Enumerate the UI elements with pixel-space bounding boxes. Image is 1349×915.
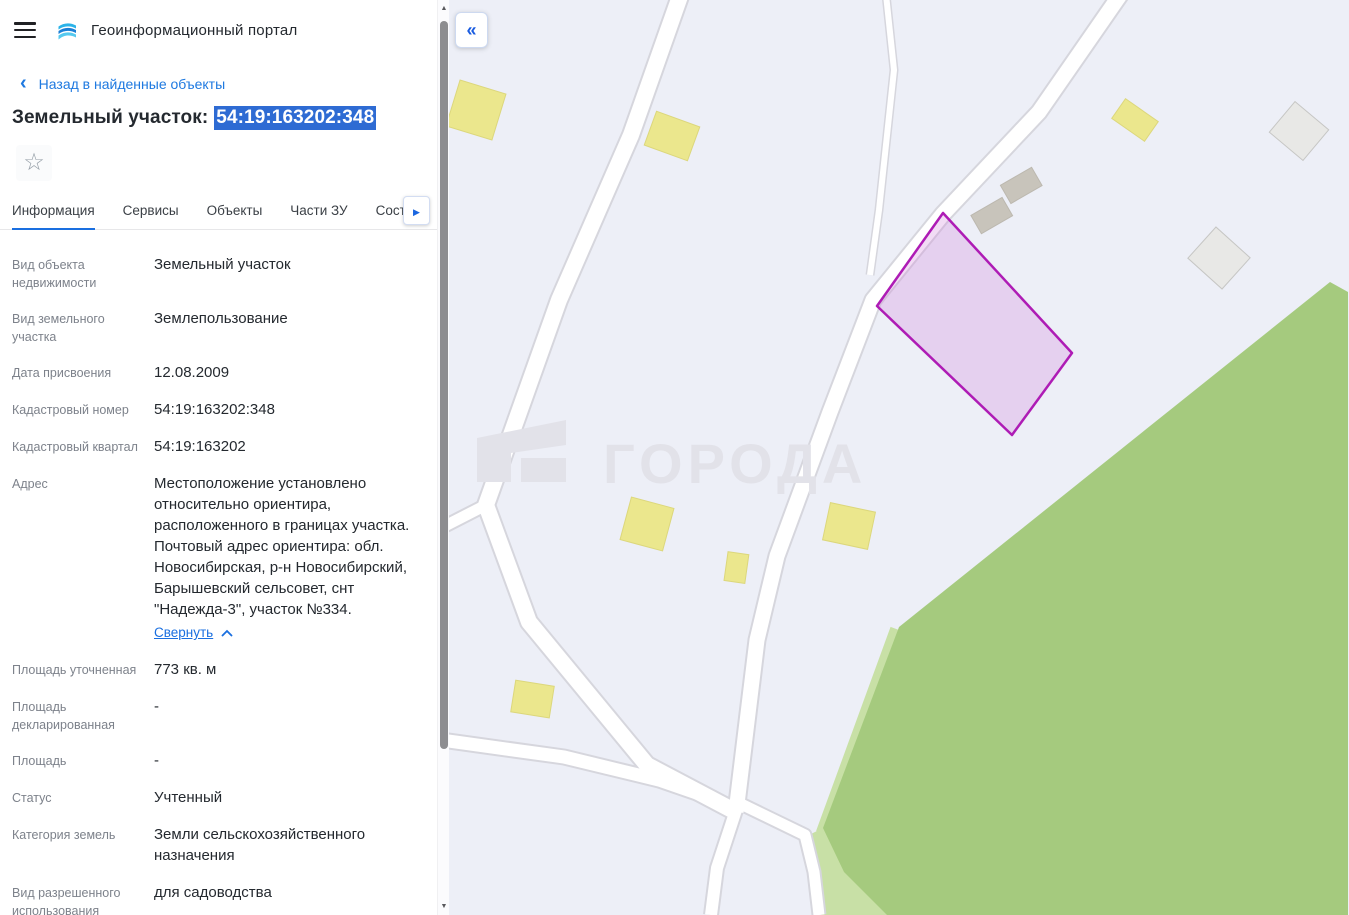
field-permitted-use: Вид разрешенного использования для садов… bbox=[12, 882, 425, 915]
field-label: Категория земель bbox=[12, 824, 154, 866]
field-address: Адрес Местоположение установлено относит… bbox=[12, 473, 425, 643]
building-yellow bbox=[511, 680, 555, 718]
tab-zu-parts[interactable]: Части ЗУ bbox=[290, 194, 347, 229]
field-assign-date: Дата присвоения 12.08.2009 bbox=[12, 362, 425, 383]
geo-portal-app: Геоинформационный портал ‹ Назад в найде… bbox=[0, 0, 1349, 915]
field-area: Площадь - bbox=[12, 750, 425, 771]
field-value: Земли сельскохозяйственного назначения bbox=[154, 824, 425, 866]
field-label: Вид разрешенного использования bbox=[12, 882, 154, 915]
field-label: Вид земельного участка bbox=[12, 308, 154, 346]
star-icon: ☆ bbox=[23, 151, 45, 175]
field-area-declared: Площадь декларированная - bbox=[12, 696, 425, 734]
field-label: Кадастровый номер bbox=[12, 399, 154, 420]
field-value: Учтенный bbox=[154, 787, 425, 808]
field-value: 54:19:163202:348 bbox=[154, 399, 425, 420]
field-label: Статус bbox=[12, 787, 154, 808]
field-value: 54:19:163202 bbox=[154, 436, 425, 457]
fields-list: Вид объекта недвижимости Земельный участ… bbox=[12, 254, 425, 915]
field-value: Земельный участок bbox=[154, 254, 425, 292]
field-label: Дата присвоения bbox=[12, 362, 154, 383]
back-link[interactable]: ‹ Назад в найденные объекты bbox=[20, 76, 437, 92]
field-status: Статус Учтенный bbox=[12, 787, 425, 808]
favorite-button[interactable]: ☆ bbox=[16, 145, 52, 181]
field-area-refined: Площадь уточненная 773 кв. м bbox=[12, 659, 425, 680]
app-title: Геоинформационный портал bbox=[91, 22, 297, 39]
field-label: Кадастровый квартал bbox=[12, 436, 154, 457]
chevron-left-icon: ‹ bbox=[20, 76, 27, 90]
field-value: 773 кв. м bbox=[154, 659, 425, 680]
watermark-text: ГОРОДА bbox=[603, 432, 867, 495]
collapse-panel-button[interactable]: « bbox=[455, 12, 488, 48]
tab-information[interactable]: Информация bbox=[12, 194, 95, 230]
field-cadastral-quarter: Кадастровый квартал 54:19:163202 bbox=[12, 436, 425, 457]
field-label: Адрес bbox=[12, 473, 154, 643]
tabs-scroll-right-button[interactable]: ▶ bbox=[403, 196, 430, 225]
cadastral-number-highlighted[interactable]: 54:19:163202:348 bbox=[214, 106, 376, 130]
field-land-category: Категория земель Земли сельскохозяйствен… bbox=[12, 824, 425, 866]
field-value: Землепользование bbox=[154, 308, 425, 346]
field-cadastral-number: Кадастровый номер 54:19:163202:348 bbox=[12, 399, 425, 420]
field-parcel-type: Вид земельного участка Землепользование bbox=[12, 308, 425, 346]
field-label: Площадь декларированная bbox=[12, 696, 154, 734]
scrollbar-thumb[interactable] bbox=[440, 21, 448, 749]
portal-logo-icon bbox=[55, 18, 79, 42]
info-panel: Геоинформационный портал ‹ Назад в найде… bbox=[0, 0, 437, 915]
page-title: Земельный участок:54:19:163202:348 bbox=[12, 107, 425, 129]
panel-header: Геоинформационный портал bbox=[0, 0, 437, 60]
panel-scrollbar[interactable]: ▲ ▼ bbox=[437, 0, 449, 915]
field-value: 12.08.2009 bbox=[154, 362, 425, 383]
tabs-bar: Информация Сервисы Объекты Части ЗУ Сост… bbox=[0, 194, 437, 230]
field-value: - bbox=[154, 696, 425, 734]
field-label: Площадь уточненная bbox=[12, 659, 154, 680]
field-value: - bbox=[154, 750, 425, 771]
double-chevron-left-icon: « bbox=[466, 20, 476, 40]
tab-services[interactable]: Сервисы bbox=[123, 194, 179, 229]
back-link-label: Назад в найденные объекты bbox=[39, 76, 225, 92]
chevron-up-icon bbox=[221, 629, 233, 637]
field-value: Местоположение установлено относительно … bbox=[154, 473, 425, 643]
field-object-type: Вид объекта недвижимости Земельный участ… bbox=[12, 254, 425, 292]
hamburger-icon bbox=[14, 22, 36, 25]
building-yellow bbox=[724, 552, 749, 584]
collapse-address-link[interactable]: Свернуть bbox=[154, 622, 213, 643]
tab-objects[interactable]: Объекты bbox=[207, 194, 263, 229]
field-value: для садоводства bbox=[154, 882, 425, 915]
field-label: Вид объекта недвижимости bbox=[12, 254, 154, 292]
address-text: Местоположение установлено относительно … bbox=[154, 475, 409, 618]
menu-button[interactable] bbox=[14, 22, 36, 38]
triangle-right-icon: ▶ bbox=[413, 207, 420, 217]
field-label: Площадь bbox=[12, 750, 154, 771]
page-title-prefix: Земельный участок: bbox=[12, 107, 208, 128]
map-canvas[interactable]: ГОРОДА « bbox=[449, 0, 1349, 915]
